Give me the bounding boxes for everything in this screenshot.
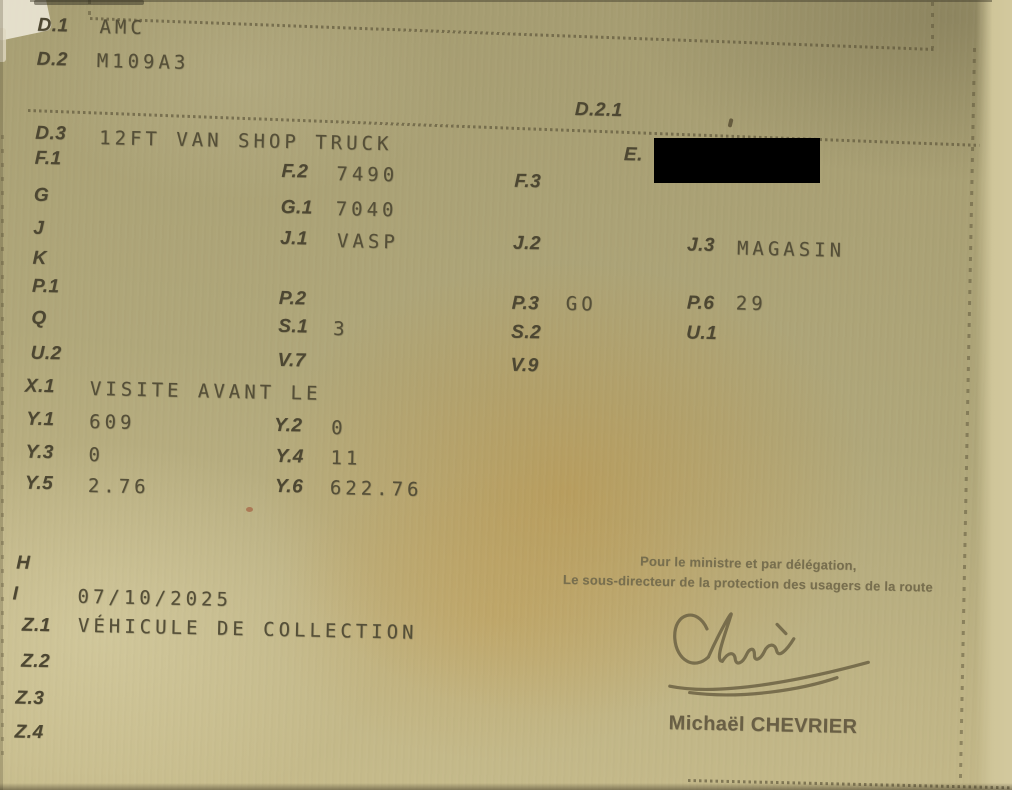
- ink-speck: [728, 118, 734, 128]
- field-label-s1: S.1: [278, 316, 308, 339]
- field-label-f3: F.3: [514, 171, 541, 194]
- field-label-z2: Z.2: [21, 651, 50, 674]
- paper-bottom-shadow: [0, 783, 1012, 790]
- field-label-v7: V.7: [277, 350, 306, 373]
- field-label-h: H: [16, 552, 31, 574]
- field-value-y5: 2.76: [88, 475, 150, 498]
- field-label-y5: Y.5: [25, 473, 54, 496]
- vehicle-registration-document: D.1 AMC D.2 M109A3 D.2.1 D.3 12FT VAN SH…: [0, 0, 1012, 790]
- field-label-y1: Y.1: [26, 409, 55, 432]
- field-label-j1: J.1: [280, 228, 308, 251]
- field-value-y2: 0: [331, 417, 347, 439]
- signer-name: Michaël CHEVRIER: [643, 712, 883, 740]
- field-label-p1: P.1: [32, 276, 60, 299]
- field-label-g1: G.1: [280, 197, 313, 220]
- field-label-s2: S.2: [511, 322, 541, 345]
- field-value-p6: 29: [736, 292, 767, 315]
- paper-top-edge-shadow: [34, 0, 144, 5]
- field-label-p2: P.2: [279, 288, 307, 311]
- redaction-box-field-e: [654, 138, 820, 183]
- field-value-i: 07/10/2025: [77, 586, 232, 611]
- signature-block: Pour le ministre et par délégation, Le s…: [533, 551, 964, 595]
- field-value-y4: 11: [330, 447, 361, 470]
- field-value-d1: AMC: [99, 16, 146, 39]
- field-value-g1: 7040: [335, 198, 397, 221]
- field-label-f1: F.1: [34, 148, 61, 171]
- field-value-f2: 7490: [336, 163, 398, 186]
- paper-top-edge: [30, 0, 992, 2]
- field-label-y3: Y.3: [25, 442, 54, 465]
- signature: [653, 598, 880, 715]
- delegation-text-line2: Le sous-directeur de la protection des u…: [533, 571, 963, 595]
- field-label-p6: P.6: [687, 292, 715, 315]
- field-label-j3: J.3: [687, 234, 715, 257]
- field-label-z3: Z.3: [15, 687, 44, 710]
- paper-left-edge: [0, 0, 3, 790]
- field-label-j2: J.2: [513, 233, 541, 256]
- field-value-j1: VASP: [337, 230, 399, 253]
- field-label-v9: V.9: [510, 355, 539, 378]
- field-label-k: K: [32, 248, 47, 270]
- field-value-y6: 622.76: [330, 477, 423, 501]
- field-label-i: I: [12, 583, 18, 605]
- field-label-f2: F.2: [281, 161, 308, 184]
- field-value-d3: 12FT VAN SHOP TRUCK: [99, 127, 393, 155]
- document-content: D.1 AMC D.2 M109A3 D.2.1 D.3 12FT VAN SH…: [0, 0, 1012, 790]
- field-label-p3: P.3: [512, 293, 540, 316]
- field-label-u1: U.1: [686, 322, 718, 345]
- field-label-d2: D.2: [37, 49, 69, 72]
- field-label-y2: Y.2: [274, 415, 303, 438]
- paper-stain: [246, 507, 253, 512]
- field-label-g: G: [34, 185, 50, 207]
- field-value-z1: VÉHICULE DE COLLECTION: [78, 615, 418, 644]
- field-label-d1: D.1: [37, 15, 69, 38]
- field-label-q: Q: [31, 308, 47, 330]
- field-label-j: J: [33, 218, 45, 240]
- field-value-x1: VISITE AVANT LE: [90, 378, 322, 405]
- field-label-d3: D.3: [35, 123, 67, 146]
- field-label-d21: D.2.1: [575, 99, 623, 122]
- field-label-z1: Z.1: [22, 615, 51, 638]
- field-label-z4: Z.4: [14, 721, 43, 744]
- field-value-d2: M109A3: [97, 50, 190, 74]
- field-value-y1: 609: [89, 411, 136, 434]
- field-label-y6: Y.6: [275, 476, 304, 499]
- field-label-x1: X.1: [25, 376, 55, 399]
- field-label-y4: Y.4: [275, 446, 304, 469]
- field-value-s1: 3: [333, 318, 349, 340]
- field-value-j3: MAGASIN: [737, 237, 846, 261]
- field-label-e: E.: [624, 144, 643, 166]
- field-label-u2: U.2: [30, 343, 62, 366]
- field-value-y3: 0: [88, 444, 104, 466]
- field-value-p3: GO: [566, 293, 597, 316]
